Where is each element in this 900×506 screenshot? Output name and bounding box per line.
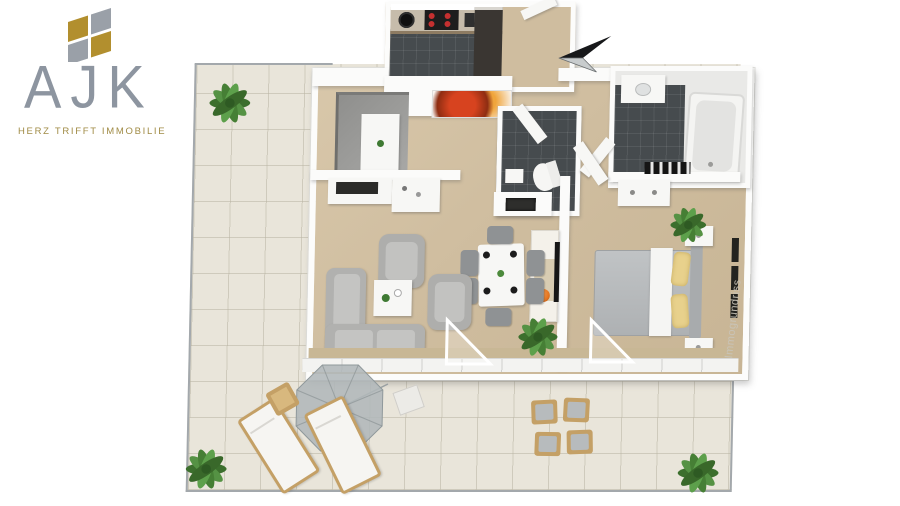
stove-icon bbox=[424, 10, 458, 30]
wc-sink bbox=[505, 169, 523, 183]
dining-chair bbox=[526, 250, 545, 276]
north-arrow-icon bbox=[556, 28, 615, 74]
entry-floor bbox=[503, 7, 560, 77]
outdoor-chair bbox=[531, 399, 558, 424]
centerpiece-icon bbox=[497, 270, 504, 277]
dining-chair bbox=[460, 250, 479, 276]
floorplan-render: AJK HERZ TRIFFT IMMOBILIE bbox=[0, 0, 900, 506]
dining-chair bbox=[487, 226, 513, 244]
plant-icon bbox=[182, 444, 231, 494]
outdoor-chair bbox=[567, 430, 593, 455]
coffee-table bbox=[373, 280, 412, 316]
wc-door-open bbox=[513, 104, 548, 144]
wc-console-wall bbox=[493, 192, 552, 216]
bed-runner bbox=[649, 248, 673, 336]
coffee-machine-icon bbox=[464, 13, 474, 27]
dining-table bbox=[478, 243, 525, 307]
plant-icon bbox=[667, 204, 710, 246]
bedroom-dresser bbox=[618, 180, 671, 206]
sideboard-desk bbox=[328, 178, 393, 204]
bed-headboard bbox=[689, 244, 703, 338]
outdoor-chair bbox=[563, 398, 590, 423]
terrace-railing-top bbox=[195, 63, 333, 65]
pillow-icon bbox=[670, 293, 689, 328]
plant-icon bbox=[514, 314, 561, 360]
floorplan: Immogrundriss bbox=[0, 0, 900, 506]
table-plant-icon bbox=[377, 140, 384, 147]
wall-top-left bbox=[312, 68, 388, 86]
terrace-door-open-icon bbox=[584, 314, 641, 366]
kitchen-floor bbox=[389, 29, 475, 77]
bathtub-icon bbox=[683, 92, 745, 181]
plant-icon bbox=[674, 448, 723, 498]
terrace-door-open-icon bbox=[438, 312, 499, 368]
desk-table bbox=[392, 178, 441, 212]
tall-cabinet bbox=[473, 7, 502, 78]
outdoor-chair bbox=[534, 432, 561, 456]
wall-art-blackwhite bbox=[644, 162, 690, 174]
plant-icon bbox=[205, 78, 254, 128]
dining-chair bbox=[526, 278, 545, 304]
bathroom-vanity bbox=[621, 75, 666, 103]
console-table bbox=[360, 114, 399, 172]
